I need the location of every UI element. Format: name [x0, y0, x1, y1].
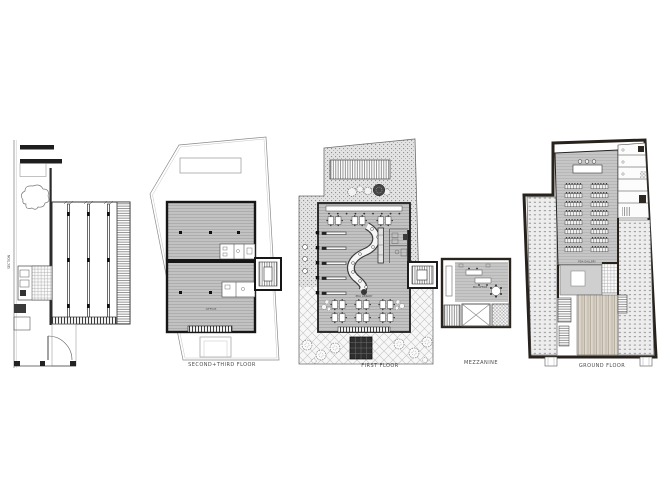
- section-drawing: SECTION: [6, 138, 142, 370]
- first-floor-plan: PDA LIBRARY: [294, 135, 440, 369]
- shaft: [492, 304, 509, 326]
- stair-core: [408, 262, 437, 288]
- plaza-pavilion: [350, 337, 372, 359]
- second-third-floor-caption: SECOND+THIRD FLOOR: [188, 363, 256, 368]
- gallery-hall: PDA GALLERY: [555, 150, 618, 265]
- library-room-label: PDA LIBRARY: [356, 294, 373, 298]
- reading-counter: [326, 206, 402, 215]
- roof-opening: [180, 158, 241, 173]
- arcade-columns: [303, 245, 308, 274]
- office-room-label: OFFICE: [206, 307, 217, 311]
- drawing-sheet: SECTION: [0, 0, 670, 502]
- stair: [444, 305, 460, 326]
- section-sketch-blob: [21, 185, 49, 209]
- office-building: OFFICE: [167, 202, 255, 332]
- entry-canopy: [200, 337, 231, 357]
- west-wing: [527, 197, 557, 355]
- east-stair: [618, 295, 627, 313]
- reading-tables-top: [326, 215, 393, 226]
- section-hall: [52, 201, 130, 324]
- section-tick-band: [52, 317, 116, 324]
- ground-floor-caption: GROUND FLOOR: [579, 364, 625, 369]
- mezzanine-office-label: PDA OFFICE: [473, 286, 488, 289]
- gallery-room-label: PDA GALLERY: [578, 260, 596, 264]
- podium-table: [573, 165, 602, 173]
- mezzanine-caption: MEZZANINE: [464, 361, 498, 366]
- stair-core: [255, 258, 281, 290]
- east-wing: [618, 220, 654, 355]
- pergola: [330, 160, 390, 179]
- void-opening: [462, 304, 490, 326]
- section-ground-line: [14, 140, 16, 368]
- ground-floor-plan: PDA GALLERY: [518, 133, 666, 373]
- toilet-block: [220, 244, 255, 259]
- library-building: PDA LIBRARY: [316, 203, 410, 332]
- entry-steps: [338, 327, 390, 332]
- west-stair: [558, 298, 571, 322]
- store-room: [222, 282, 255, 297]
- podium-chairs: [578, 160, 596, 164]
- section-caption: SECTION: [7, 254, 11, 269]
- first-floor-caption: FIRST FLOOR: [361, 364, 398, 369]
- section-service-rooms: [14, 266, 52, 330]
- second-third-floor-plan: OFFICE: [146, 130, 294, 376]
- service-counter: [378, 228, 384, 263]
- balcony-railing: [188, 326, 232, 332]
- mezzanine-plan: PDA OFFICE: [439, 257, 519, 353]
- shelf-corridor: [446, 266, 452, 296]
- toilet-strip: [618, 143, 649, 218]
